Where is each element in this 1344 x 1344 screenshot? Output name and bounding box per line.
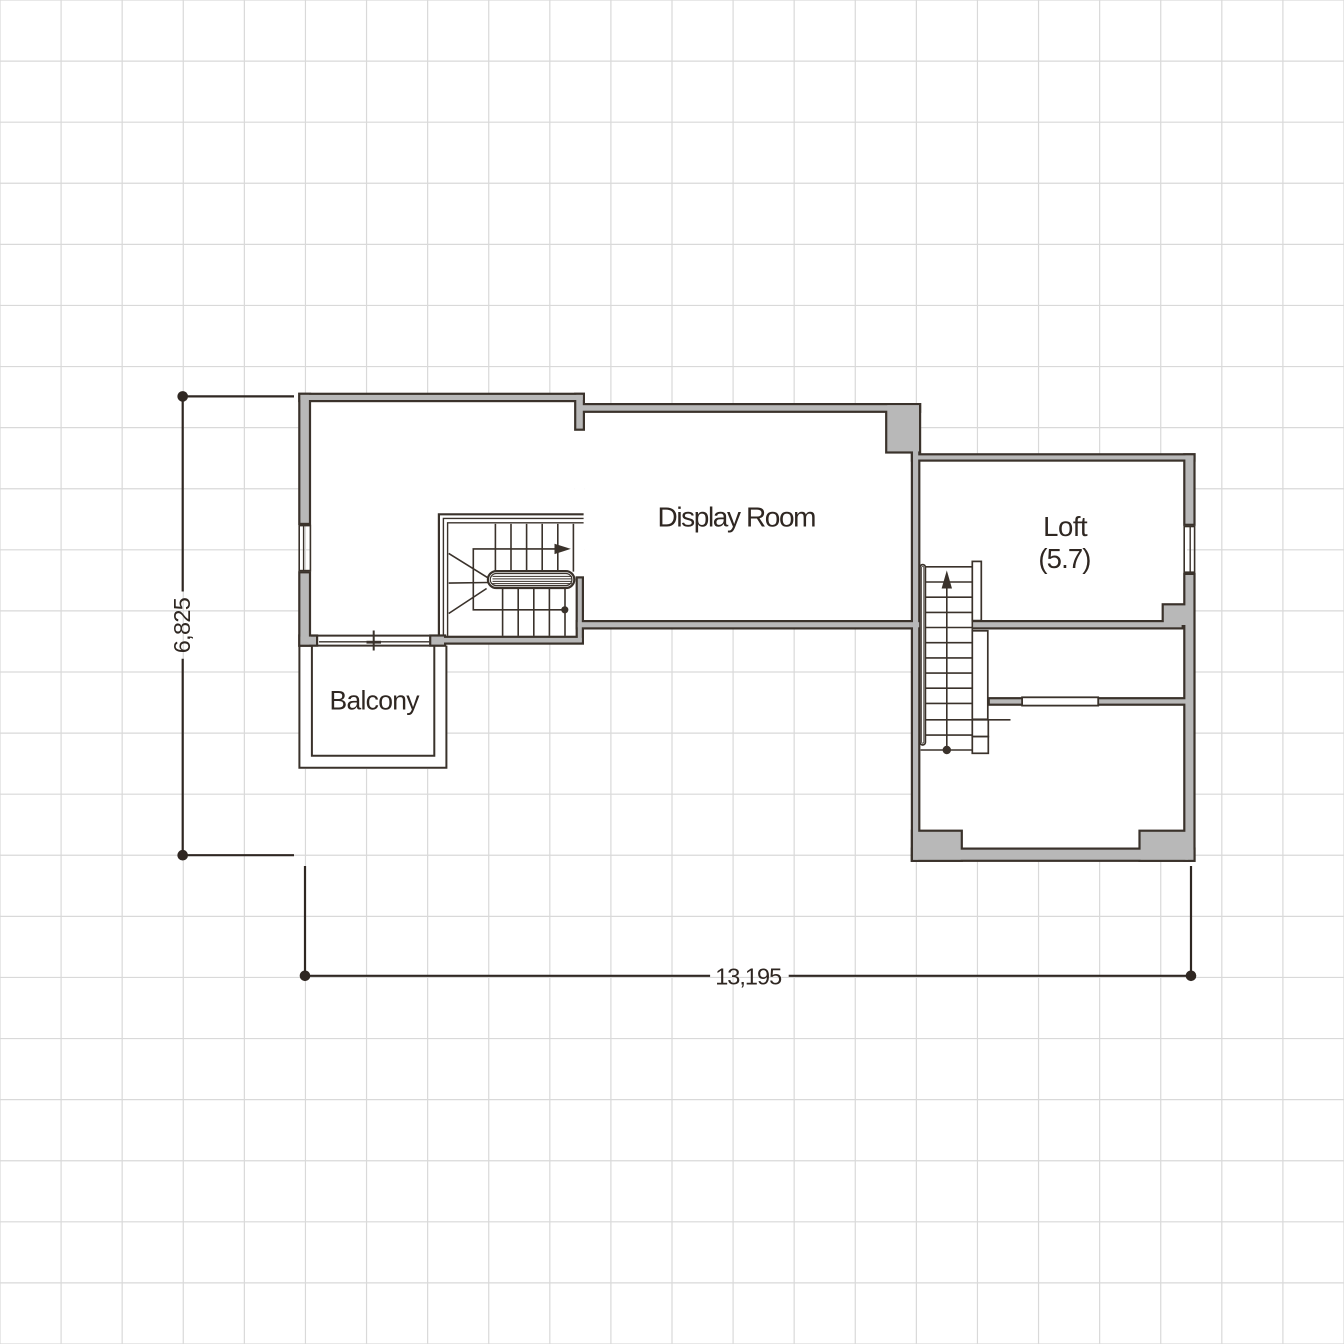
svg-text:6,825: 6,825	[169, 597, 195, 653]
svg-text:13,195: 13,195	[715, 963, 782, 989]
svg-text:(5.7): (5.7)	[1038, 543, 1091, 574]
svg-text:Loft: Loft	[1043, 511, 1088, 542]
svg-text:Balcony: Balcony	[330, 686, 421, 716]
svg-text:Display Room: Display Room	[658, 501, 817, 532]
